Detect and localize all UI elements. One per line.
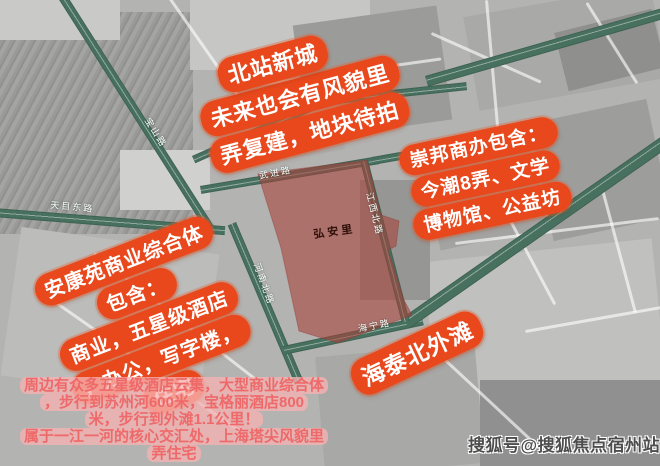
map-canvas: 弘安里 天目东路 宝山路 东新民路 武进路 江西北路 河南北路 海宁路 北站新城… xyxy=(0,0,660,466)
bottom-note-line: ，步行到苏州河600米，宝格丽酒店800 xyxy=(40,394,308,411)
bottom-note-line: 米，步行到外滩1.1公里！ xyxy=(85,411,264,428)
bottom-note-line: 属于一江一河的核心交汇处，上海塔尖风貌里 xyxy=(20,428,328,445)
bottom-note-line: 周边有众多五星级酒店云集，大型商业综合体 xyxy=(20,377,328,394)
watermark: 搜狐号@搜狐焦点宿州站 xyxy=(468,431,660,456)
bottom-note: 周边有众多五星级酒店云集，大型商业综合体 ，步行到苏州河600米，宝格丽酒店80… xyxy=(0,377,348,462)
bottom-note-line: 弄住宅 xyxy=(147,445,200,462)
